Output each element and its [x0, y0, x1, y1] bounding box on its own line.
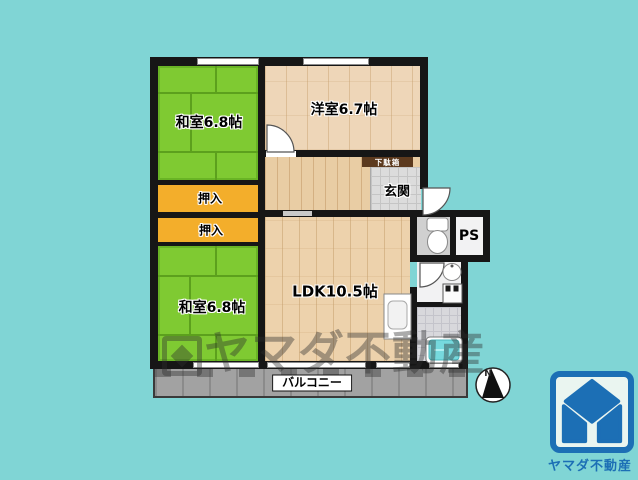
compass-n-label: N	[484, 369, 492, 379]
floorplan-image: 下駄箱	[0, 0, 638, 480]
label-washitsu-top: 和室6.8帖	[176, 112, 243, 132]
label-western-room: 洋室6.7帖	[311, 99, 378, 119]
window-balcony-ldk	[267, 362, 366, 368]
yamada-logo-icon	[550, 371, 634, 453]
room-toilet	[417, 215, 450, 255]
label-entrance: 玄関	[384, 181, 410, 200]
wall-washroom-bath-divider	[417, 302, 461, 307]
wall-mid-divider	[150, 212, 265, 218]
wall-closet-washitsu	[158, 242, 258, 246]
doorway-western	[266, 151, 296, 157]
label-balcony: バルコニー	[272, 375, 352, 392]
wall-toilet-ps-divider	[450, 215, 456, 255]
wall-ldk-right-upper	[410, 210, 417, 262]
wall-washroom-right	[461, 255, 468, 368]
sliding-door-ldk	[283, 211, 312, 216]
window-bathroom	[429, 363, 459, 368]
room-washroom	[417, 262, 461, 302]
wall-washitsu-closet	[158, 180, 258, 185]
shoe-cabinet: 下駄箱	[362, 157, 413, 167]
label-closet-bottom: 押入	[199, 222, 223, 239]
label-pipe-space: PS	[459, 228, 479, 244]
room-bathroom	[417, 307, 461, 361]
wall-toilet-bottom	[417, 255, 461, 262]
label-washitsu-bottom: 和室6.8帖	[179, 297, 246, 317]
wall-ldk-right-lower	[410, 287, 417, 361]
window-top-western	[303, 58, 369, 65]
label-closet-top: 押入	[198, 190, 222, 207]
window-kitchen	[376, 362, 410, 368]
wall-top	[150, 57, 428, 66]
window-top-washitsu	[197, 58, 259, 65]
shoe-cabinet-label: 下駄箱	[375, 157, 401, 168]
window-balcony-washitsu	[193, 362, 259, 368]
compass-north-icon: N	[476, 368, 510, 402]
label-ldk: LDK10.5帖	[292, 281, 378, 302]
company-name: ヤマダ不動産	[542, 455, 638, 474]
wall-right-upper	[420, 57, 428, 189]
